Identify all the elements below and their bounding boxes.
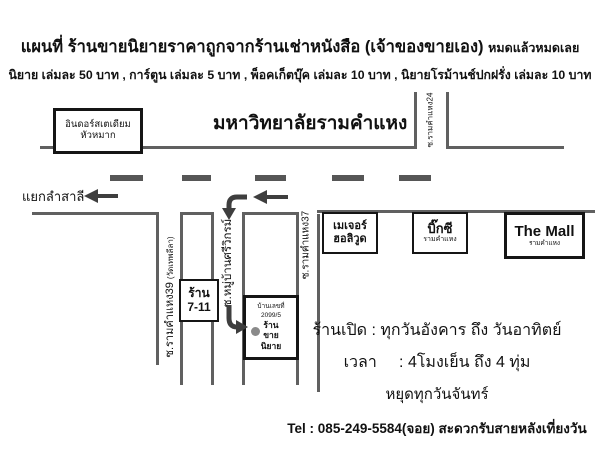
indoor-stadium-box: อินดอร์สเตเดียม หัวหมาก <box>53 108 143 154</box>
arrow-to-shop-shaft <box>229 305 239 327</box>
road-line-block1-top <box>180 212 214 215</box>
soi39-temple-note: (วัดเทพลีลา) <box>166 237 175 280</box>
seven-eleven-line2: 7-11 <box>181 301 217 315</box>
closed-day-text: หยุดทุกวันจันทร์ <box>278 382 596 406</box>
road-center-dash <box>182 175 211 181</box>
seven-eleven-line1: ร้าน <box>181 287 217 301</box>
soi24-road-label: ซ.รามคำแหง24 <box>424 93 437 148</box>
road-line-east-block-top <box>446 146 564 149</box>
price-list-subtitle: นิยาย เล่มละ 50 บาท , การ์ตูน เล่มละ 5 บ… <box>0 66 600 85</box>
big-c-name: บิ๊กซี <box>414 222 466 237</box>
soi39-road-name: ซ.รามคำแหง39 <box>164 282 176 357</box>
road-center-dash <box>110 175 143 181</box>
big-c-branch: รามคำแหง <box>414 236 466 244</box>
the-mall-branch: รามคำแหง <box>507 240 582 247</box>
soi39-road-label: ซ.รามคำแหง39 (วัดเทพลีลา) <box>160 237 178 358</box>
telephone-text: Tel : 085-249-5584(จอย) สะดวกรับสายหลังเ… <box>278 417 596 439</box>
major-hollywood-line2: ฮอลิวูด <box>324 233 376 246</box>
soi37-road-label: ซ.รามคำแหง37 <box>299 211 314 280</box>
road-center-dash <box>255 175 286 181</box>
road-line-south-west <box>32 212 159 215</box>
open-hours-text: เวลา : 4โมงเย็น ถึง 4 ทุ่ม <box>278 350 596 375</box>
shop-location-dot <box>251 327 260 336</box>
srivikrom-road-label: ซ.หมู่บ้านศรีวิกรม์ <box>219 219 237 307</box>
novel-shop-house-number: 2099/5 <box>246 312 296 320</box>
big-c-box: บิ๊กซี รามคำแหง <box>412 212 468 254</box>
shop-info-block: ร้านเปิด : ทุกวันอังคาร ถึง วันอาทิตย์ เ… <box>278 318 596 439</box>
open-days-text: ร้านเปิด : ทุกวันอังคาร ถึง วันอาทิตย์ <box>278 318 596 343</box>
road-line-block2-top <box>242 212 299 215</box>
arrow-turn-into-soi-shaft <box>229 197 247 210</box>
page-title-suffix: หมดแล้วหมดเลย <box>488 41 579 55</box>
road-line-soi24-west <box>414 92 417 149</box>
road-line-soi24-east <box>446 92 449 149</box>
university-label: มหาวิทยาลัยรามคำแหง <box>213 108 407 138</box>
seven-eleven-box: ร้าน 7-11 <box>179 279 219 322</box>
arrow-to-lamsali-head <box>84 189 98 203</box>
map-page: แผนที่ ร้านขายนิยายราคาถูกจากร้านเช่าหนั… <box>0 0 600 450</box>
page-title: แผนที่ ร้านขายนิยายราคาถูกจากร้านเช่าหนั… <box>0 34 600 60</box>
major-hollywood-line1: เมเจอร์ <box>324 220 376 233</box>
page-title-main: แผนที่ ร้านขายนิยายราคาถูกจากร้านเช่าหนั… <box>21 38 484 56</box>
novel-shop-line5: นิยาย <box>246 341 296 352</box>
arrow-along-road-head <box>253 190 267 204</box>
road-line-soi39-west <box>156 212 159 365</box>
lam-sali-intersection-label: แยกลำสาลี <box>22 186 84 207</box>
major-hollywood-box: เมเจอร์ ฮอลิวูด <box>322 212 378 254</box>
novel-shop-house-label: บ้านเลขที่ <box>246 303 296 311</box>
the-mall-box: The Mall รามคำแหง <box>504 212 585 259</box>
novel-shop-box: บ้านเลขที่ 2099/5 ร้าน ขาย นิยาย <box>243 295 299 360</box>
the-mall-name: The Mall <box>507 223 582 240</box>
indoor-stadium-line2: หัวหมาก <box>56 131 140 142</box>
road-center-dash <box>332 175 364 181</box>
road-center-dash <box>399 175 431 181</box>
